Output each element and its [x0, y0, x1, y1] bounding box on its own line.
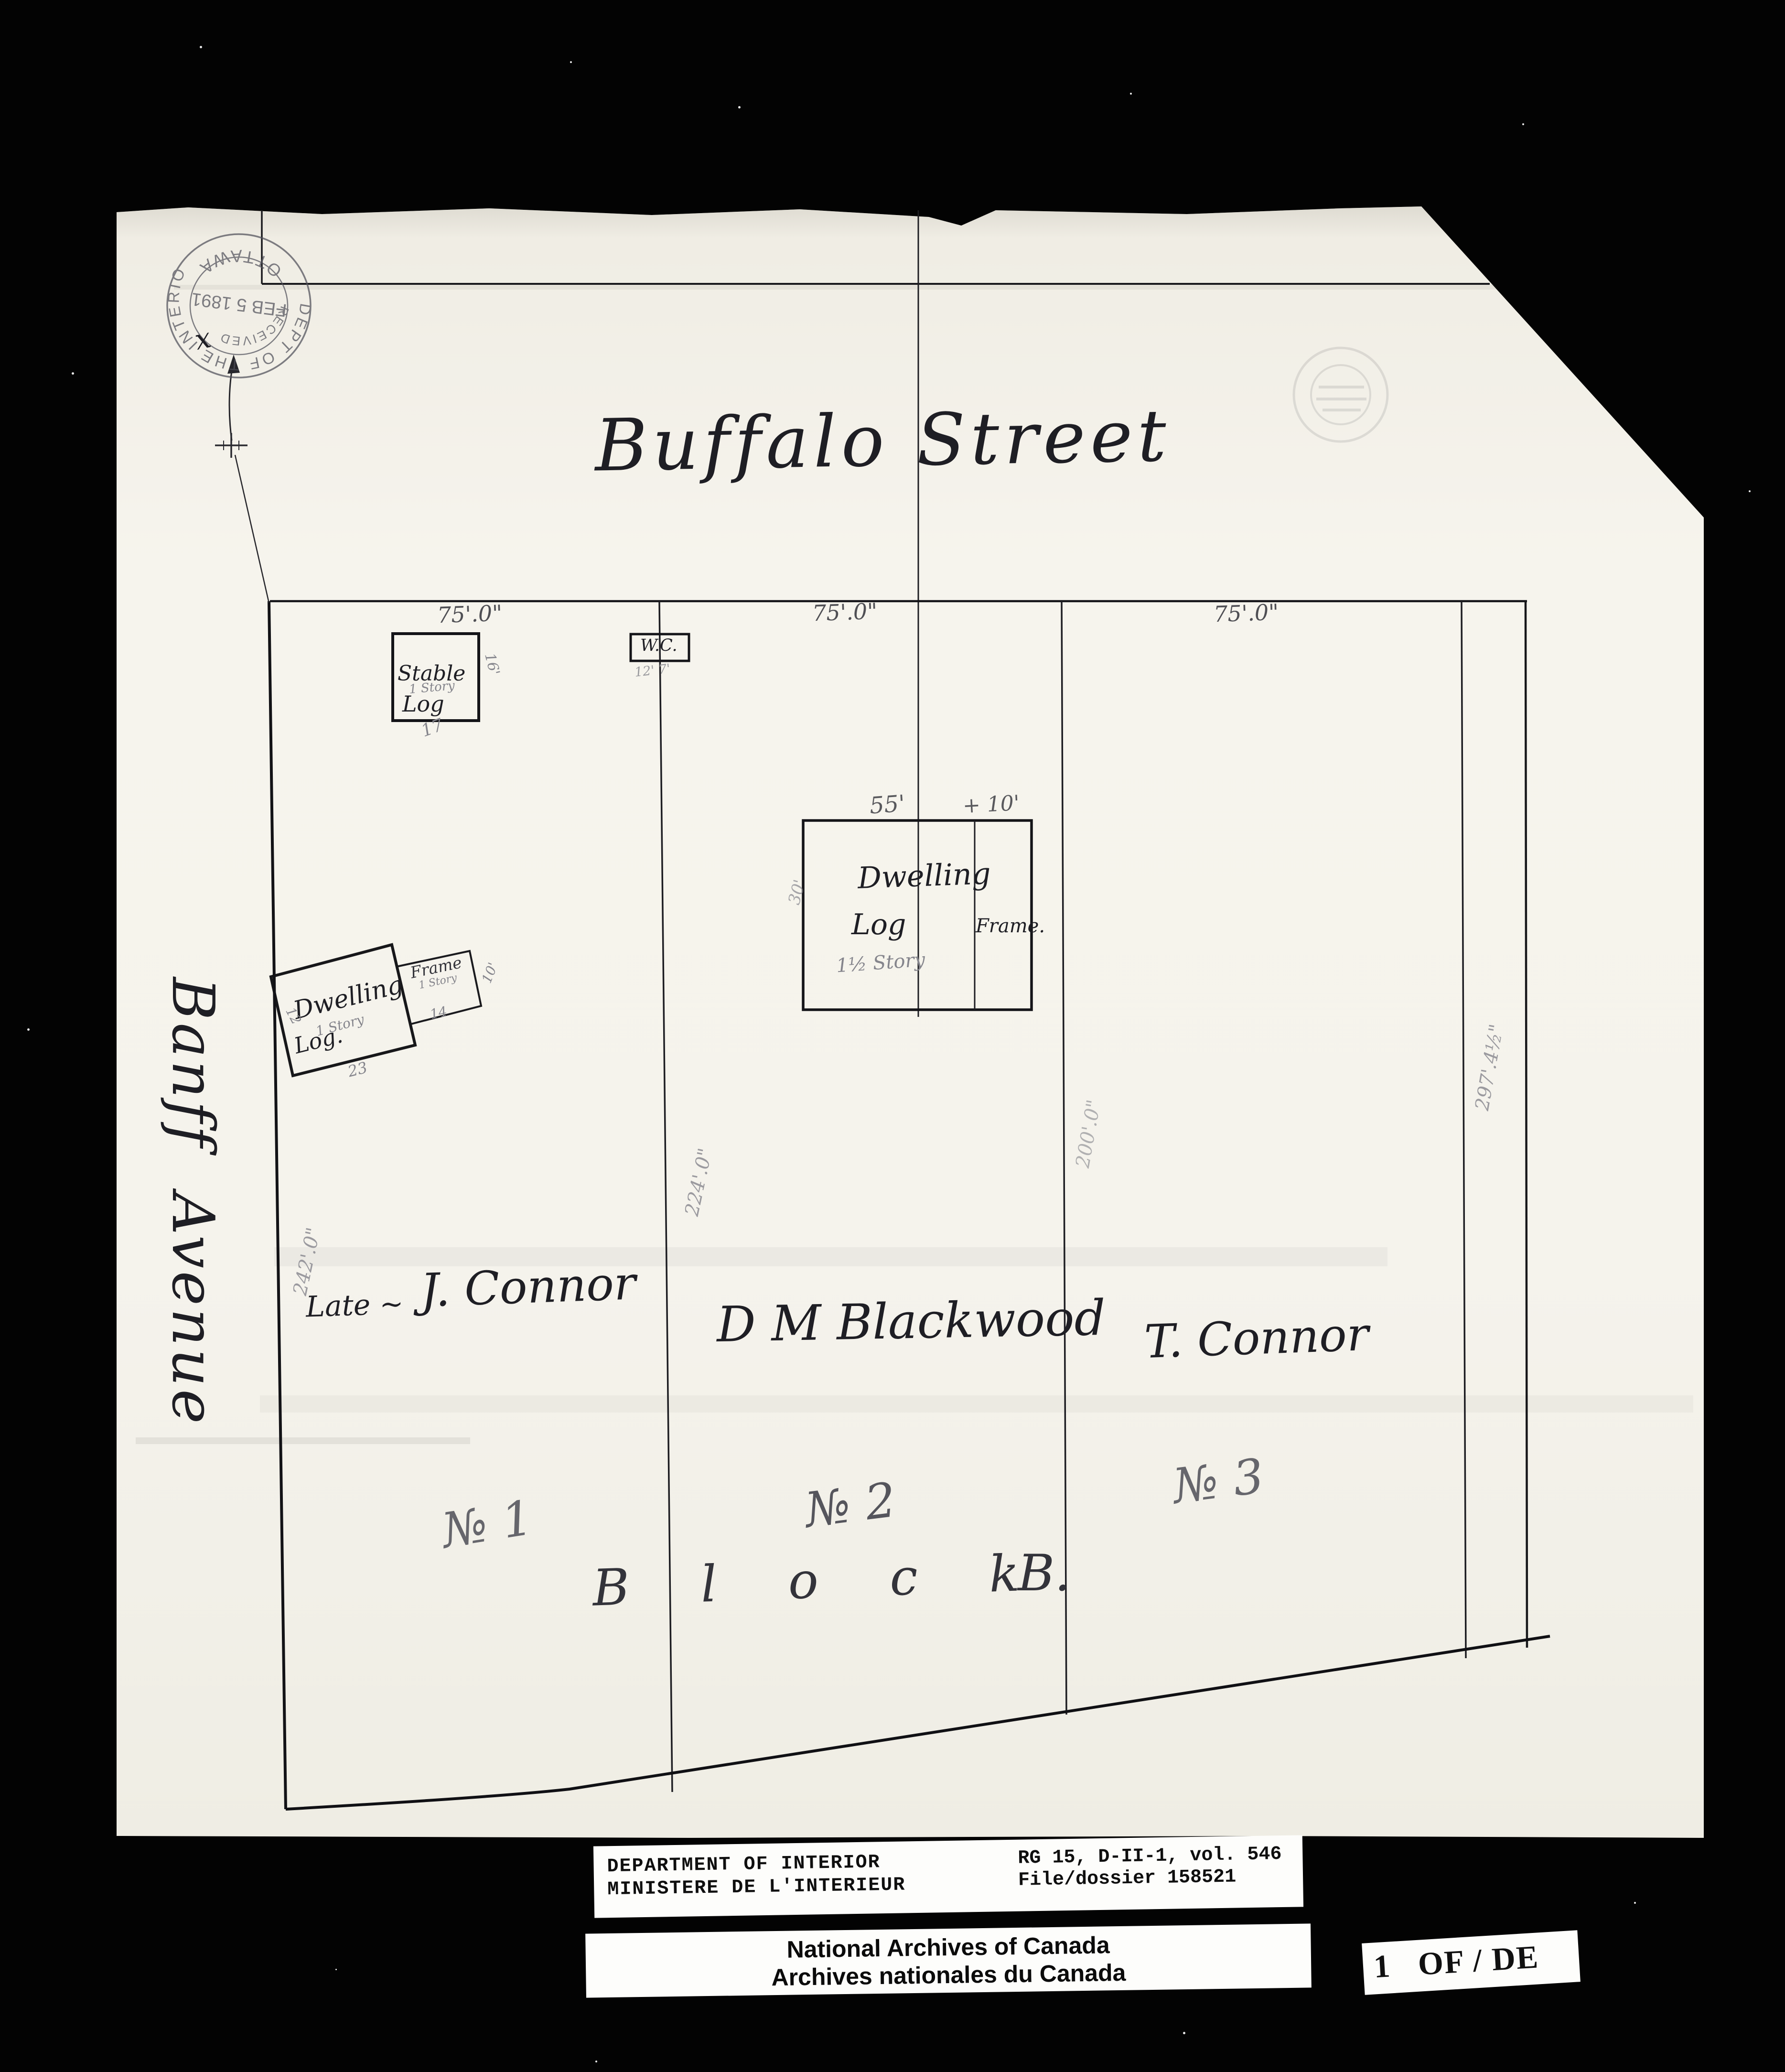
department-reference-box: DEPARTMENT OF INTERIOR MINISTERE DE L'IN… — [593, 1835, 1303, 1918]
department-name-fr: MINISTERE DE L'INTERIEUR — [607, 1876, 906, 1899]
rear-diagonal-line — [286, 1636, 1550, 1809]
dwelling2-wing-label: Frame. — [976, 917, 1045, 936]
owner-lot1-name: J. Connor — [419, 1260, 636, 1314]
file-dossier-number: File/dossier 158521 — [1018, 1868, 1237, 1890]
department-name-en: DEPARTMENT OF INTERIOR — [607, 1853, 881, 1877]
dwelling1-dim-bottom: 23 — [346, 1060, 369, 1079]
received-date-stamp: DEPT OF THE INTERIOR OTTAWA RECEIVED FEB… — [125, 226, 492, 654]
wc-dims: 12' 7' — [634, 662, 671, 679]
owner-lot2-name: D M Blackwood — [716, 1294, 1106, 1349]
frontage-lot3: 75'.0" — [1213, 601, 1279, 626]
stamp-ring-top-text: DEPT OF THE INTERIOR — [125, 263, 487, 654]
page-number-text: 1 OF / DE — [1373, 1940, 1540, 1983]
lot-number-1: № 1 — [439, 1494, 536, 1555]
owner-lot1-prefix: Late ~ — [305, 1289, 404, 1321]
dwelling1-wing-dim-bottom: 14 — [429, 1005, 448, 1022]
svg-text:OTTAWA: OTTAWA — [192, 240, 287, 290]
dwelling2-material: Log — [851, 910, 906, 939]
stamp-date-text: FEB 5 1891 — [190, 289, 288, 320]
national-archives-box: National Archives of Canada Archives nat… — [585, 1923, 1312, 1997]
lot-number-3: № 3 — [1171, 1452, 1267, 1511]
record-group-reference: RG 15, D-II-1, vol. 546 — [1018, 1845, 1282, 1868]
owner-lot3-name: T. Connor — [1143, 1311, 1369, 1365]
archival-scan: DEPT OF THE INTERIOR OTTAWA RECEIVED FEB… — [0, 0, 1785, 2072]
lot-number-2: № 2 — [803, 1476, 899, 1534]
survey-cross-mark — [215, 433, 247, 458]
east-boundary-line — [1526, 601, 1527, 1648]
frontage-lot2: 75'.0" — [812, 600, 878, 625]
lot-line-3 — [1462, 601, 1466, 1658]
dwelling2-dim-top-main: 55' — [869, 792, 905, 817]
faint-stamp — [1294, 348, 1387, 442]
svg-text:DEPT OF THE INTERIOR: DEPT OF THE INTERIOR — [125, 263, 487, 654]
dwelling2-name: Dwelling — [857, 859, 991, 893]
plan-linework: DEPT OF THE INTERIOR OTTAWA RECEIVED FEB… — [0, 0, 1785, 2072]
west-boundary-banff-avenue — [269, 601, 286, 1809]
frontage-lot1: 75'.0" — [437, 602, 503, 626]
block-letter: B. — [1018, 1548, 1071, 1598]
street-name-label: Buffalo Street — [594, 400, 1172, 482]
stable-material: Log — [402, 693, 444, 715]
block-label-spread: B l o c k — [591, 1547, 1048, 1613]
avenue-name-label: Banff Avenue — [164, 977, 222, 1426]
archives-name-fr: Archives nationales du Canada — [586, 1958, 1312, 1992]
stamp-ring-bottom-text: OTTAWA — [192, 240, 287, 290]
survey-tie-line — [235, 455, 269, 603]
wc-name: W.C. — [640, 637, 677, 654]
dwelling2-dim-top-wing: + 10' — [962, 793, 1020, 817]
